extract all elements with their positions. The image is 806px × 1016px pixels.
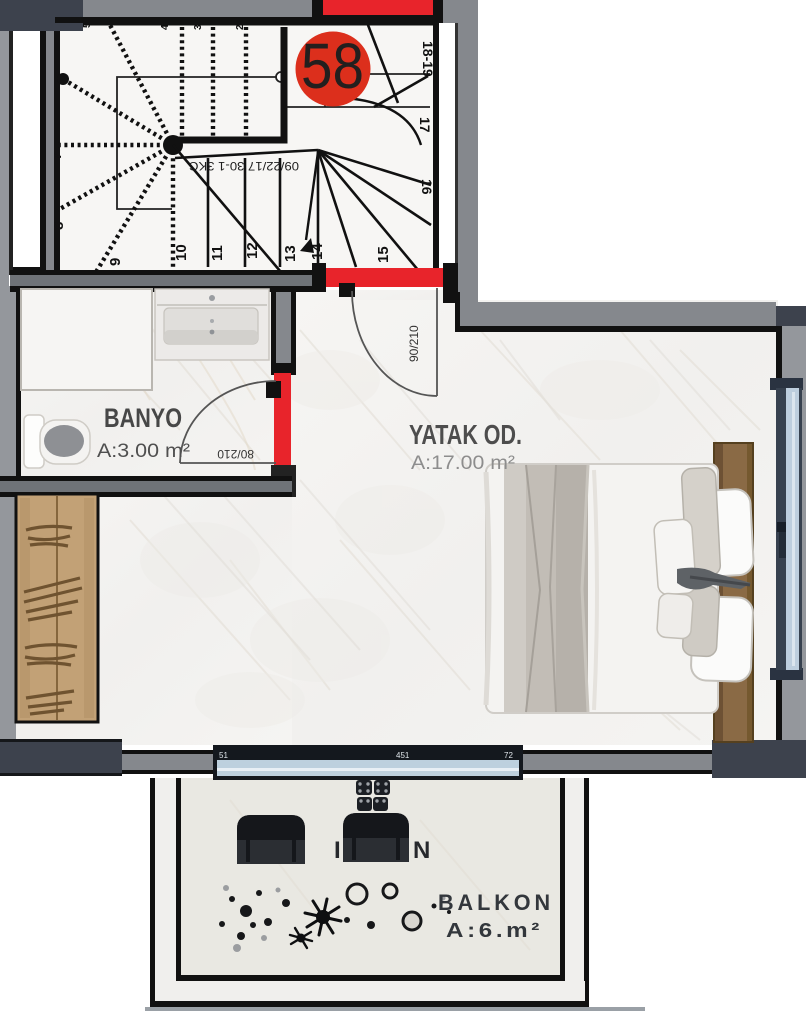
svg-text:15: 15	[375, 246, 392, 263]
svg-text:YATAK OD.: YATAK OD.	[409, 419, 522, 450]
svg-text:51: 51	[219, 751, 228, 760]
svg-text:4: 4	[160, 24, 171, 30]
svg-text:I: I	[334, 837, 341, 864]
svg-text:A:3.00 m²: A:3.00 m²	[97, 441, 190, 462]
svg-text:16: 16	[419, 179, 435, 195]
svg-text:80/210: 80/210	[217, 447, 254, 461]
svg-text:09/22/17 30-1 3KC: 09/22/17 30-1 3KC	[189, 159, 299, 173]
svg-text:10: 10	[173, 244, 190, 261]
svg-text:N: N	[413, 837, 430, 864]
svg-text:90/210: 90/210	[407, 325, 421, 362]
svg-text:9: 9	[107, 258, 124, 266]
svg-text:A:6.m²: A:6.m²	[446, 920, 543, 942]
svg-text:14: 14	[309, 243, 326, 260]
svg-text:BALKON: BALKON	[438, 890, 554, 915]
svg-text:17: 17	[417, 117, 433, 133]
svg-text:13: 13	[282, 245, 299, 262]
svg-text:11: 11	[209, 245, 226, 261]
svg-text:A:17.00 m²: A:17.00 m²	[411, 453, 515, 474]
svg-text:2: 2	[235, 24, 246, 30]
svg-text:12: 12	[244, 242, 261, 259]
svg-text:58: 58	[301, 30, 364, 102]
svg-text:BANYO: BANYO	[104, 403, 182, 433]
svg-text:18-19: 18-19	[420, 41, 436, 77]
svg-text:451: 451	[396, 751, 410, 760]
svg-text:3: 3	[193, 24, 204, 30]
svg-text:72: 72	[504, 751, 513, 760]
